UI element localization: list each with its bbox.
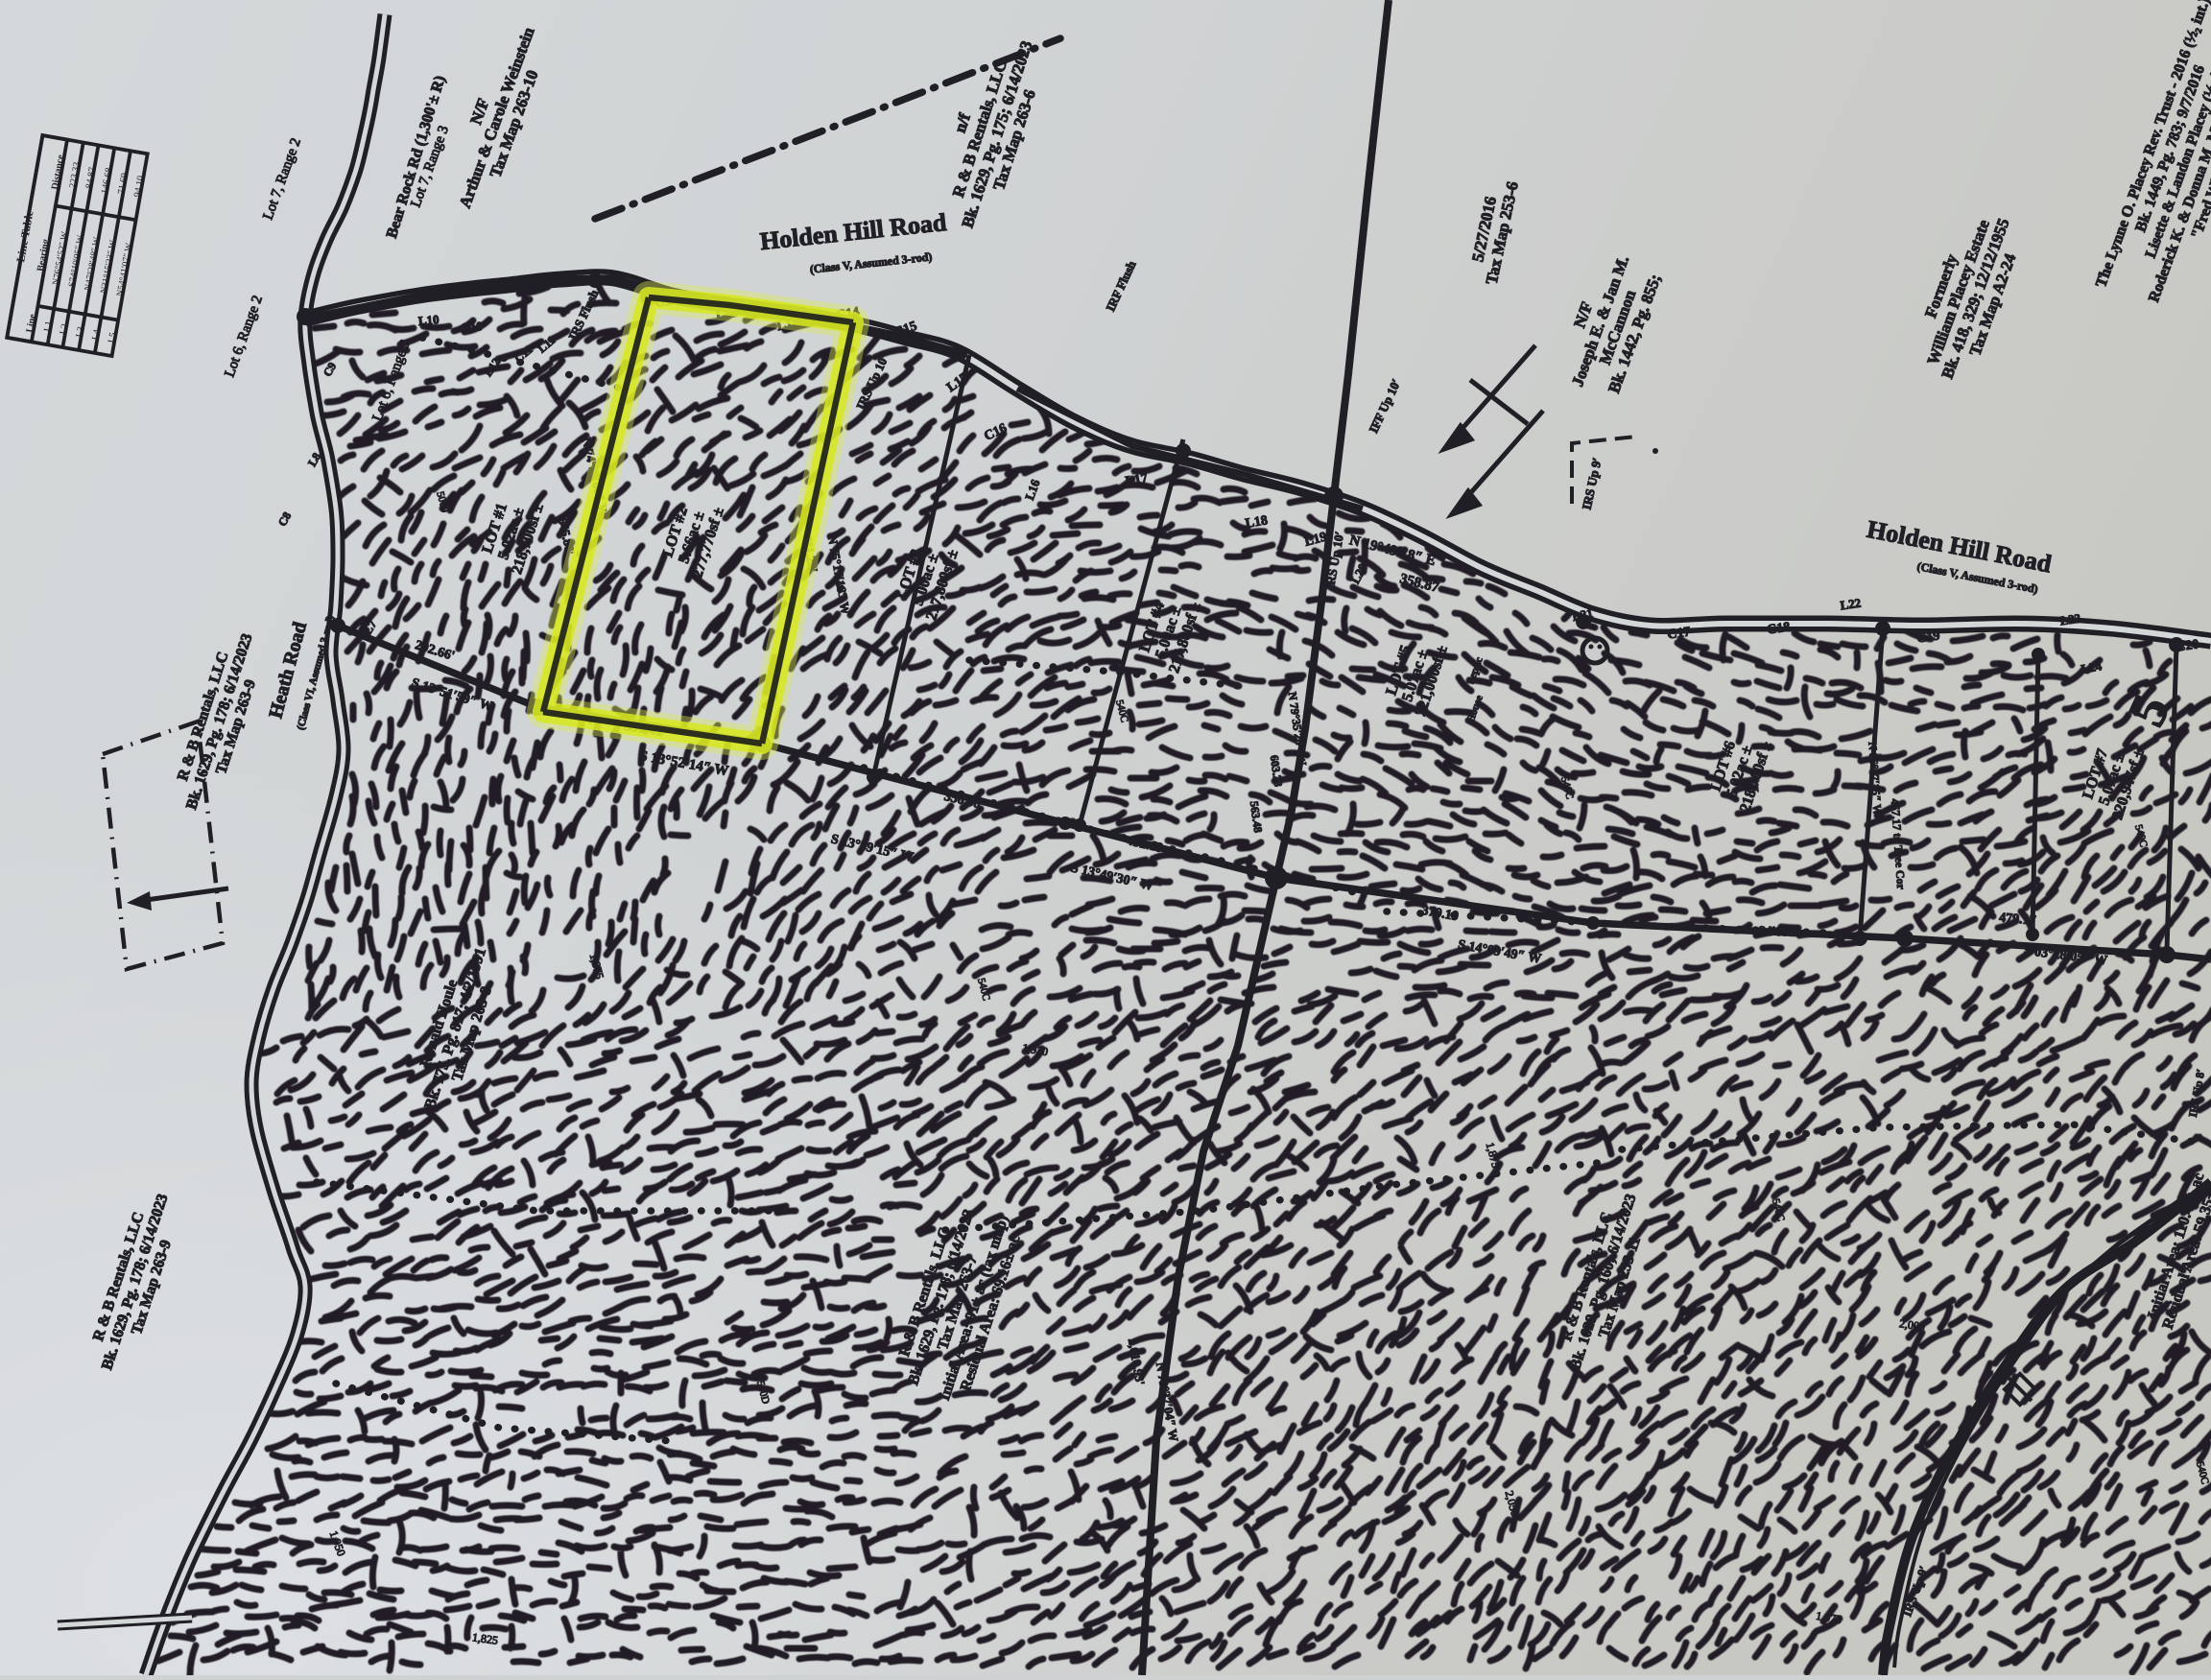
svg-text:L2: L2 [59,323,71,336]
svg-text:L5: L5 [107,332,119,344]
svg-text:L3: L3 [75,326,87,339]
svg-text:569.78: 569.78 [1758,922,1795,937]
svg-text:L1: L1 [42,320,55,333]
svg-text:L23: L23 [2059,611,2082,628]
svg-text:L22: L22 [1840,596,1863,613]
svg-text:C10: C10 [461,319,484,335]
svg-text:L10: L10 [417,312,440,328]
svg-text:L4: L4 [90,329,103,342]
